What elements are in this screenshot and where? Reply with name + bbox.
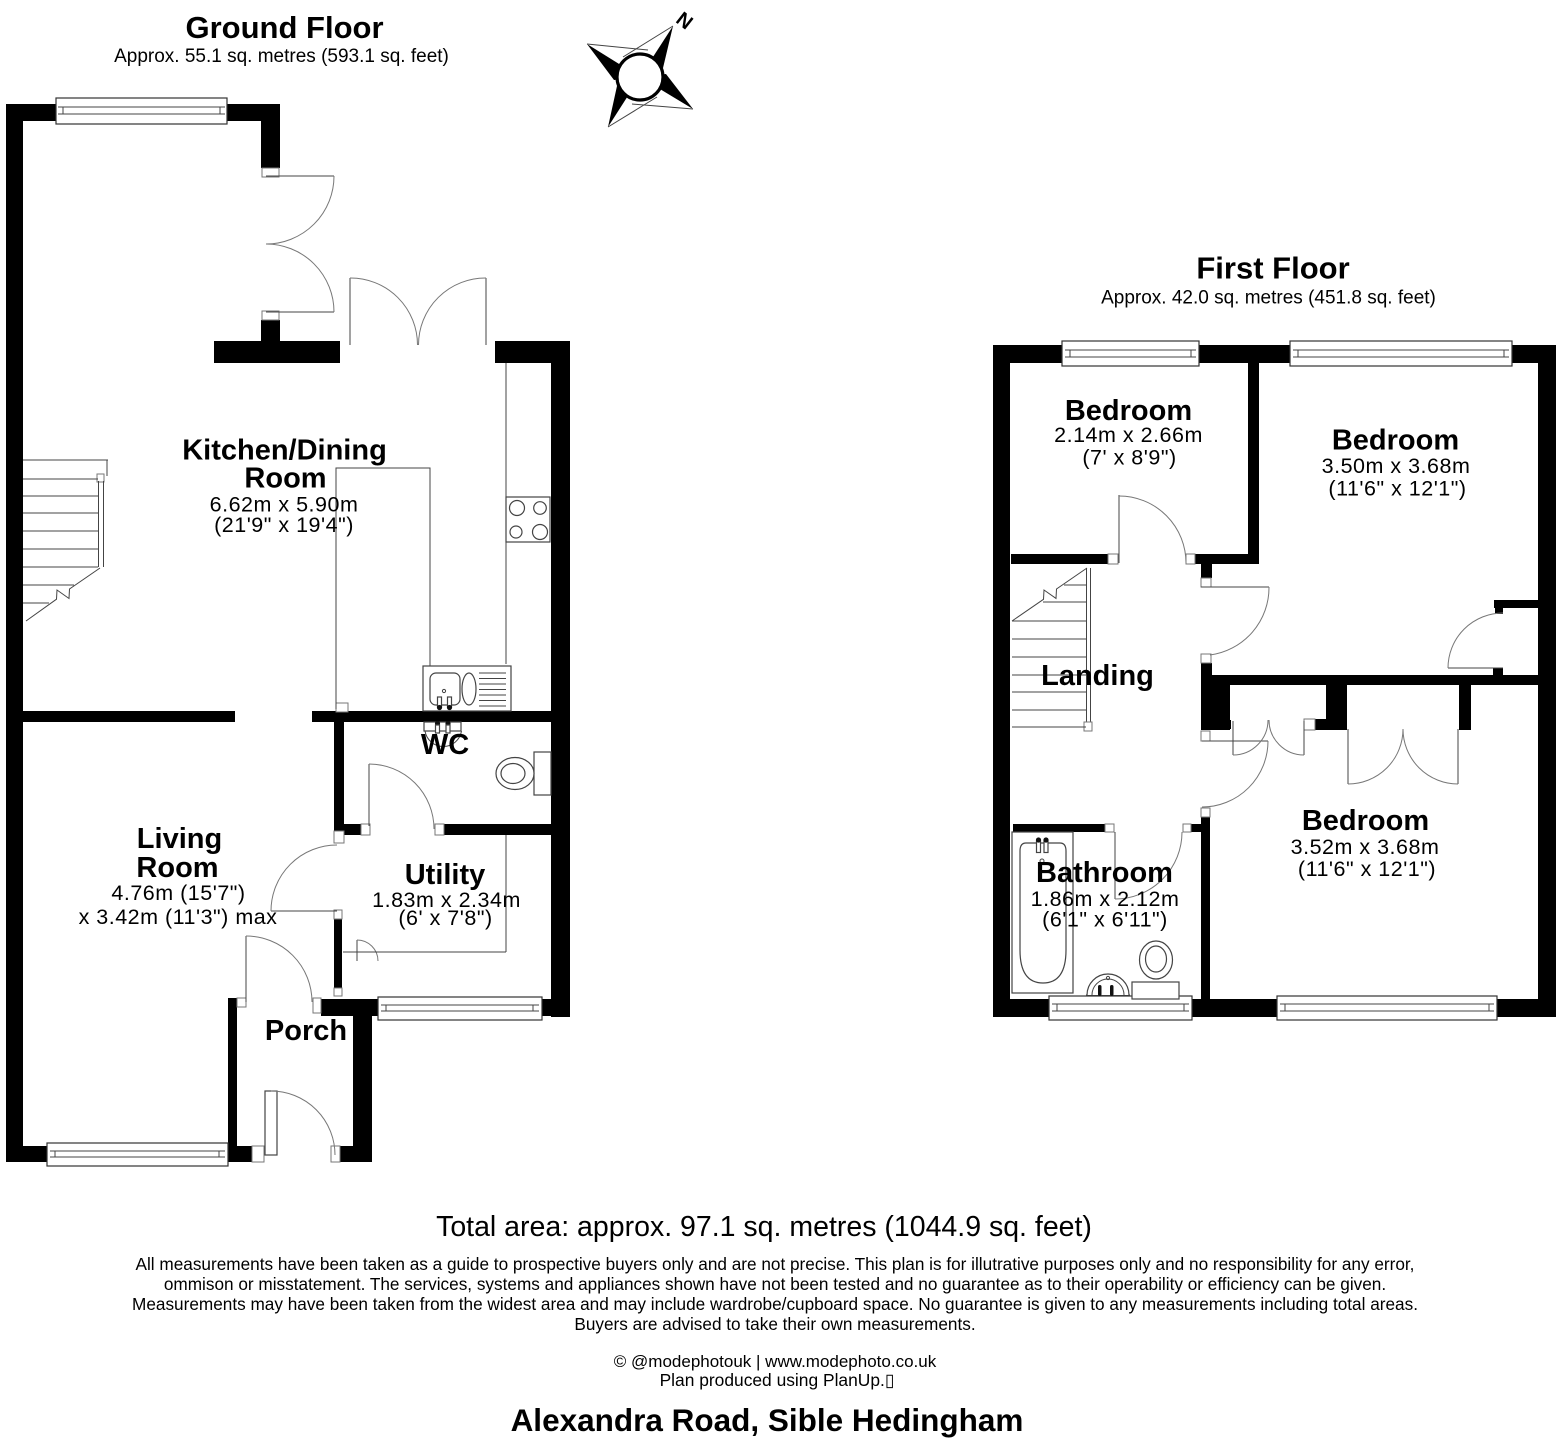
svg-text:Approx. 42.0 sq. metres (451.8: Approx. 42.0 sq. metres (451.8 sq. feet) xyxy=(1101,288,1436,309)
svg-text:First Floor: First Floor xyxy=(1196,251,1349,286)
svg-text:Alexandra Road, Sible Hedingha: Alexandra Road, Sible Hedingham xyxy=(511,1402,1024,1438)
svg-text:Bedroom: Bedroom xyxy=(1332,425,1459,457)
svg-text:Room: Room xyxy=(244,463,326,495)
svg-text:All measurements have been tak: All measurements have been taken as a gu… xyxy=(136,1254,1415,1274)
svg-text:Living: Living xyxy=(137,823,222,855)
svg-text:Buyers are advised to take the: Buyers are advised to take their own mea… xyxy=(574,1314,975,1334)
svg-text:Ground Floor: Ground Floor xyxy=(185,10,383,45)
svg-text:Bedroom: Bedroom xyxy=(1302,805,1429,837)
svg-text:Total area: approx. 97.1 sq. m: Total area: approx. 97.1 sq. metres (104… xyxy=(436,1211,1092,1243)
svg-text:ommison or misstatement. The s: ommison or misstatement. The services, s… xyxy=(164,1274,1386,1294)
svg-text:3.50m x 3.68m: 3.50m x 3.68m xyxy=(1322,454,1471,478)
svg-text:Utility: Utility xyxy=(405,859,486,891)
svg-text:Landing: Landing xyxy=(1041,660,1154,692)
svg-text:Plan produced using PlanUp.▯: Plan produced using PlanUp.▯ xyxy=(660,1370,895,1390)
svg-text:Bathroom: Bathroom xyxy=(1036,857,1173,889)
svg-text:Measurements may have been tak: Measurements may have been taken from th… xyxy=(132,1294,1418,1314)
svg-text:© @modephotouk | www.modephoto: © @modephotouk | www.modephoto.co.uk xyxy=(614,1352,937,1371)
svg-text:(7' x 8'9"): (7' x 8'9") xyxy=(1082,446,1176,470)
svg-text:3.52m x 3.68m: 3.52m x 3.68m xyxy=(1291,835,1440,859)
svg-text:(11'6" x 12'1"): (11'6" x 12'1") xyxy=(1298,857,1436,881)
svg-text:4.76m (15'7"): 4.76m (15'7") xyxy=(111,881,245,905)
svg-text:(21'9" x 19'4"): (21'9" x 19'4") xyxy=(214,513,354,537)
svg-text:(6'1" x 6'11"): (6'1" x 6'11") xyxy=(1042,908,1168,932)
svg-text:Room: Room xyxy=(136,852,218,884)
svg-text:Porch: Porch xyxy=(265,1015,347,1047)
svg-text:(11'6" x 12'1"): (11'6" x 12'1") xyxy=(1328,477,1466,501)
svg-text:2.14m x 2.66m: 2.14m x 2.66m xyxy=(1054,423,1203,447)
svg-text:WC: WC xyxy=(421,729,469,761)
svg-text:(6' x 7'8"): (6' x 7'8") xyxy=(398,906,492,930)
svg-text:x 3.42m (11'3") max: x 3.42m (11'3") max xyxy=(79,905,278,929)
svg-text:Approx. 55.1 sq. metres (593.1: Approx. 55.1 sq. metres (593.1 sq. feet) xyxy=(114,46,449,67)
